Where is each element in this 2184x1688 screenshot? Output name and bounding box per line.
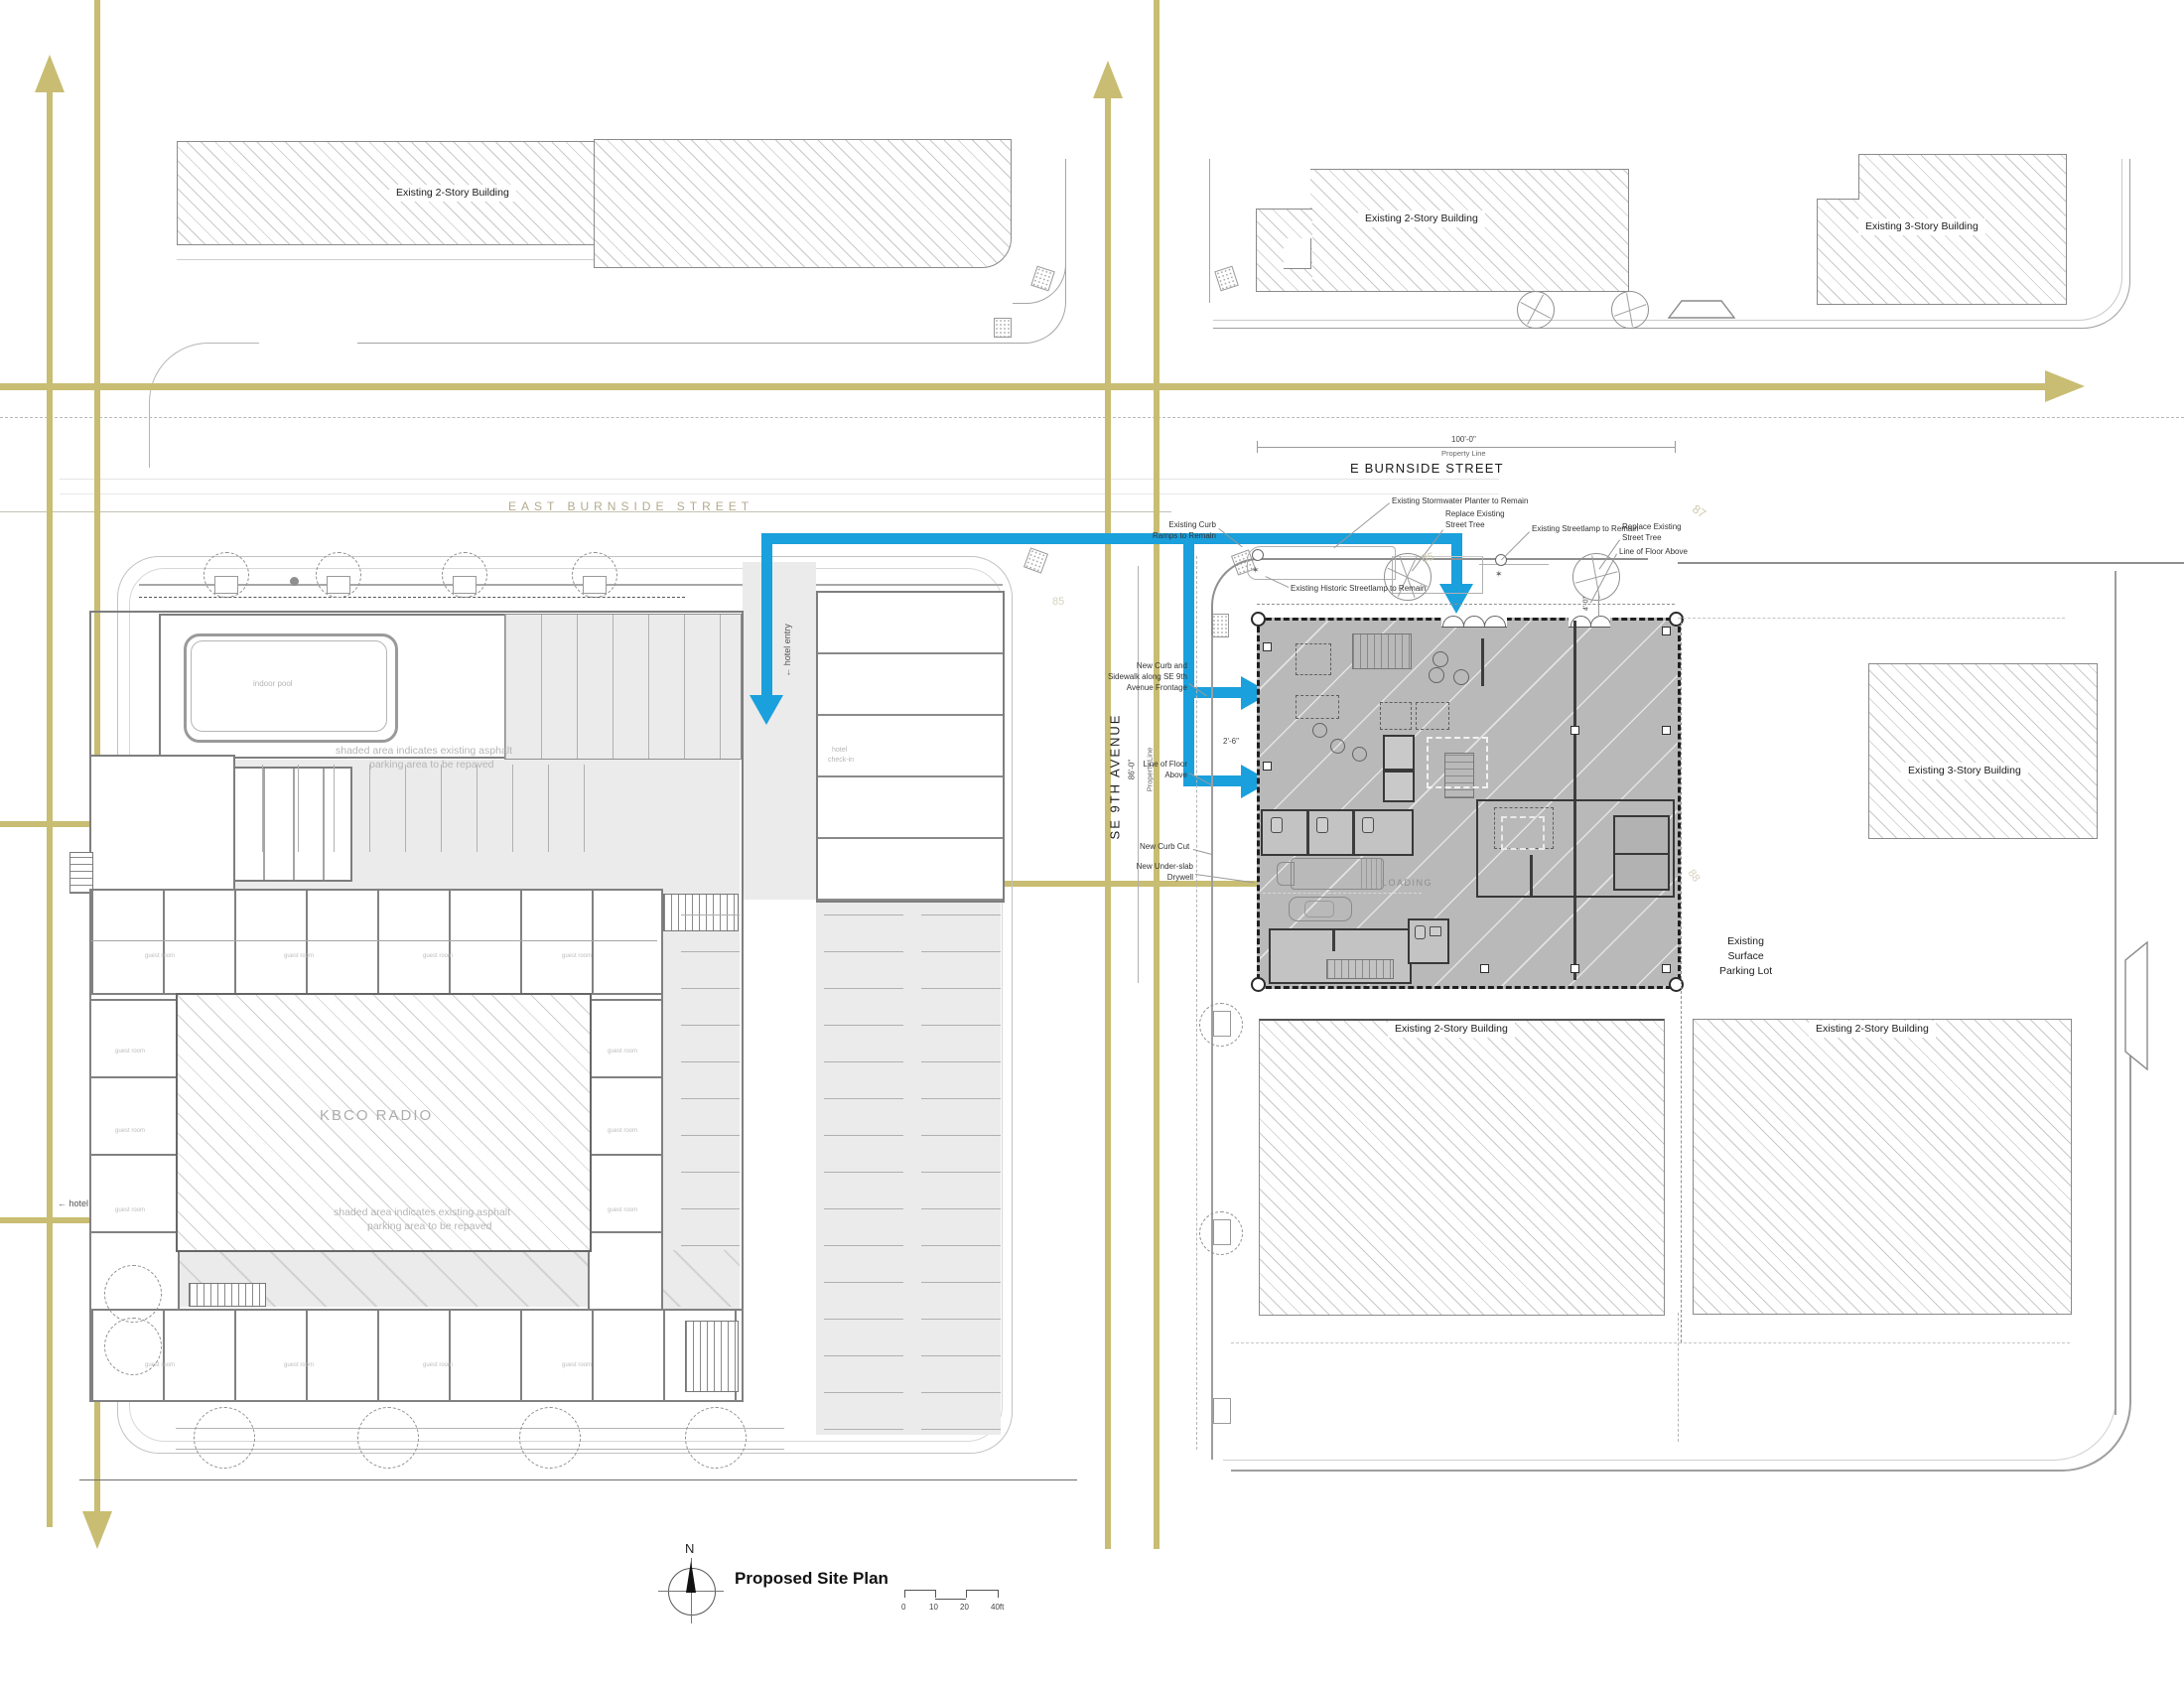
chair [1453, 669, 1469, 685]
west-stair [69, 852, 93, 894]
callout-historic-lamp: Existing Historic Streetlamp to Remain [1291, 584, 1427, 595]
callout-line: New Curb and [1137, 661, 1187, 670]
elevator-1 [1383, 735, 1415, 771]
scale-tick [966, 1590, 967, 1598]
surface-parking-line: Parking Lot [1719, 965, 1772, 977]
roof-dash-2 [1501, 816, 1545, 850]
scale-seg-2 [935, 1599, 966, 1600]
repave-note-bot-1: shaded area indicates existing asphalt [334, 1206, 510, 1218]
guest-room-label: guest room [284, 953, 314, 959]
right-sidewalk-edge-2 [1678, 562, 2184, 564]
hotel-tree-w1 [104, 1265, 162, 1323]
restroom-partition [1306, 811, 1309, 854]
scale-tick [935, 1590, 936, 1598]
scale-tick [998, 1590, 999, 1598]
scale-tick [904, 1590, 905, 1598]
guest-room-label: guest room [115, 1207, 145, 1213]
toilet [1362, 817, 1374, 833]
restroom-block [1261, 809, 1414, 856]
faint-line-2 [60, 493, 1499, 494]
indoor-pool-label: indoor pool [253, 679, 293, 688]
scale-label-20: 20 [960, 1603, 969, 1612]
building-nmid-label-text: Existing 2-Story Building [1365, 212, 1478, 224]
hotel-driveway [743, 562, 816, 900]
street-furniture-dot [290, 577, 299, 586]
elevator-2 [1383, 771, 1415, 802]
building-nw2-2story [594, 139, 1012, 268]
chair [1429, 667, 1444, 683]
e-burnside-label: E BURNSIDE STREET [1350, 461, 1504, 476]
callout-line: Street Tree [1445, 520, 1485, 529]
plan-title: Proposed Site Plan [735, 1569, 888, 1589]
building-ne-label-line1: Existing 3-Story Building [1865, 220, 1979, 232]
north-wing-bathline [91, 940, 657, 941]
building-nmid-label: Existing 2-Story Building [1358, 211, 1485, 227]
entrance-1 [1441, 614, 1507, 628]
street-arrow-h1-shaft [0, 383, 2047, 390]
east-aisle-stalls [681, 899, 740, 1246]
column-marker [1570, 964, 1579, 973]
south-wing-stair [685, 1321, 739, 1392]
mid-parking-stalls [262, 765, 590, 852]
tree-planter-4 [583, 576, 607, 594]
building-nw-label: Existing 2-Story Building [389, 185, 516, 202]
east-lot-stalls-2 [921, 914, 1001, 1430]
partial-wall [1481, 638, 1484, 686]
door-arc [1590, 616, 1610, 628]
lobby-stair [1352, 633, 1412, 669]
hotel-checkin-label1: hotel [832, 747, 847, 754]
callout-replace-tree-1: Replace Existing Street Tree [1445, 509, 1505, 531]
right-street-curb [2115, 571, 2116, 1415]
chair [1330, 739, 1345, 754]
south-guestroom-wing [89, 1309, 744, 1402]
streetlamp-base-icon: ✶ [1495, 570, 1503, 579]
callout-line: Replace Existing [1622, 522, 1682, 531]
roof-dash-1 [1427, 737, 1488, 788]
callout-line: Sidewalk along SE 9th [1108, 672, 1187, 681]
guest-room-label: guest room [608, 1128, 637, 1134]
stormwater-planter-a [1247, 546, 1396, 580]
building-nw-sidewalk-edge [177, 243, 594, 260]
north-label: N [685, 1541, 694, 1556]
repave-note-top-1: shaded area indicates existing asphalt [336, 745, 512, 757]
guest-room-label: guest room [284, 1362, 314, 1368]
south-room-stair [1326, 959, 1394, 979]
transit-shelter-east [2124, 941, 2148, 1070]
route-entry-vertical [761, 533, 772, 695]
right-site-west-curb [1211, 635, 1213, 1460]
floor-offset-dim: 4'-0" [1583, 597, 1590, 611]
corner-marker-nw [1251, 612, 1266, 627]
building-nmid-2story [1310, 169, 1629, 292]
street-arrow-v1-head [35, 55, 65, 92]
kbco-radio-label: KBCO RADIO [320, 1107, 433, 1124]
callout-line: Street Tree [1622, 533, 1662, 542]
historic-streetlamp-icon [1252, 549, 1264, 561]
street-arrow-v3-head [1093, 61, 1123, 98]
site-plan-canvas: EAST BURNSIDE STREET Existing 2-Story Bu… [0, 0, 2184, 1688]
east-room-box-2 [1613, 853, 1670, 891]
route-entry-head [750, 695, 783, 725]
column-marker [1480, 964, 1489, 973]
callout-floor-above-2: Line of Floor Above [1112, 760, 1187, 781]
curb-ramp-sw [1024, 547, 1048, 573]
chair [1433, 651, 1448, 667]
car-roof [1304, 901, 1334, 917]
restroom-partition [1352, 811, 1355, 854]
scale-label-0: 0 [901, 1603, 905, 1612]
building-e-3story-label: Existing 3-Story Building [1901, 763, 2028, 779]
callout-curb-cut: New Curb Cut [1140, 842, 1189, 853]
callout-line: Ramps to Remain [1153, 531, 1216, 540]
grade-line [79, 1479, 1077, 1480]
callout-new-curb: New Curb and Sidewalk along SE 9th Avenu… [1102, 661, 1187, 693]
toilet [1271, 817, 1283, 833]
small-room [1408, 918, 1449, 964]
left-sidewalk-edge2 [814, 584, 1003, 586]
callout-line: Above [1164, 771, 1187, 779]
west-rooms-upper [89, 755, 235, 893]
street-arrow-v2-head [82, 1511, 112, 1549]
building-nw-2story [177, 141, 596, 245]
lobby-table-4 [1416, 702, 1449, 730]
east-guestroom-wing [588, 993, 663, 1313]
scale-label-10: 10 [929, 1603, 938, 1612]
dim-tick-l [1257, 441, 1258, 453]
street-arrow-h1-head [2045, 370, 2085, 402]
door-arc [1484, 616, 1506, 628]
street-arrow-v1-shaft [47, 91, 53, 1527]
lobby-table-1 [1296, 643, 1331, 675]
east-room-box-1 [1613, 815, 1670, 855]
callout-curb-ramps: Existing Curb Ramps to Remain [1147, 520, 1216, 542]
building-nw-label-text: Existing 2-Story Building [396, 187, 509, 199]
transit-shelter-north [1668, 300, 1735, 319]
dim-tick-r [1675, 441, 1676, 453]
hotel-tree-s4 [685, 1407, 747, 1469]
column-marker [1662, 627, 1671, 635]
north-curb-west-corner [149, 343, 259, 468]
south-drive-stair [189, 1283, 266, 1307]
lobby-table-2 [1296, 695, 1339, 719]
callout-line: Avenue Frontage [1127, 683, 1187, 692]
route-horizontal [761, 533, 1462, 544]
arrow-glyph: ← [58, 1198, 67, 1208]
property-line-label: Property Line [1441, 449, 1486, 458]
callout-line: Replace Existing [1445, 509, 1505, 518]
property-dash-top [1678, 618, 2065, 619]
block-curb-southeast-inner [1223, 993, 2116, 1461]
callout-line: Existing Curb [1168, 520, 1216, 529]
repave-note-top-2: parking area to be repaved [369, 759, 494, 771]
route-branch-vertical [1183, 533, 1194, 786]
contour-85: 85 [1421, 551, 1434, 565]
property-dim-line [1257, 447, 1675, 448]
callout-line: New Under-slab [1137, 862, 1193, 871]
surface-parking-line: Surface [1727, 950, 1763, 962]
east-burnside-ghost-text: EAST BURNSIDE STREET [508, 499, 753, 513]
column-marker [1662, 964, 1671, 973]
line-of-floor-above-dash [1257, 604, 1675, 605]
loading-stall-dash [1263, 893, 1422, 894]
callout-floor-above: Line of Floor Above [1619, 547, 1688, 558]
column-marker [1662, 726, 1671, 735]
building-e-3story [1868, 663, 2098, 839]
guest-room-label: guest room [145, 953, 175, 959]
tree-planter-1 [214, 576, 238, 594]
curb-ramp-nw2 [994, 318, 1012, 338]
loading-label: LOADING [1382, 878, 1433, 888]
east-room-partition [1530, 855, 1533, 896]
street-tree-n1 [1517, 291, 1555, 329]
callout-line: Line of Floor [1144, 760, 1187, 769]
guest-room-label: guest room [562, 953, 592, 959]
hotel-entry-label: ← hotel entry [782, 624, 792, 677]
faint-line-1 [60, 479, 1499, 480]
guest-room-label: guest room [608, 1207, 637, 1213]
toilet [1415, 925, 1426, 939]
toilet [1316, 817, 1328, 833]
leader-streetlamp [1501, 531, 1530, 560]
contour-85b: 85 [1052, 596, 1064, 608]
guest-room-label: guest room [115, 1128, 145, 1134]
callout-replace-tree-2: Replace Existing Street Tree [1622, 522, 1682, 544]
chair [1352, 747, 1367, 762]
scale-seg-3 [966, 1590, 998, 1591]
hotel-checkin-label2: check-in [828, 757, 854, 764]
truck-cab [1277, 862, 1295, 886]
column-marker [1570, 726, 1579, 735]
guest-room-label: guest room [423, 953, 453, 959]
corner-marker-sw [1251, 977, 1266, 992]
scale-seg-1 [904, 1590, 935, 1591]
arrow-glyph: ← [782, 668, 792, 677]
surface-parking-line: Existing [1727, 935, 1764, 947]
north-arrow-needle [686, 1561, 696, 1593]
surface-parking-label: Existing Surface Parking Lot [1712, 933, 1779, 981]
tree-planter-3 [453, 576, 477, 594]
setback-dim: 2'-6" [1223, 737, 1239, 748]
property-width-dim: 100'-0" [1451, 435, 1476, 444]
street-tree-n2 [1611, 291, 1649, 329]
upper-parking-strip [504, 614, 742, 760]
column-marker [1263, 762, 1272, 771]
guest-room-label: guest room [115, 1049, 145, 1055]
hotel-tree-w2 [104, 1318, 162, 1375]
guest-room-label: guest room [423, 1362, 453, 1368]
chair [1312, 723, 1327, 738]
building-ne-label: Existing 3-Story Building [1858, 218, 1985, 235]
repave-note-bot-2: parking area to be repaved [367, 1220, 492, 1232]
callout-drywell: New Under-slab Drywell [1122, 862, 1193, 884]
contour-88: 88 [1686, 868, 1703, 885]
south-rooms [1269, 928, 1412, 984]
guest-room-label: guest room [608, 1049, 637, 1055]
column-marker [1263, 642, 1272, 651]
east-lot-stalls-1 [824, 914, 903, 1430]
historic-streetlamp-base-icon: ✶ [1252, 566, 1260, 575]
north-guestroom-wing [89, 889, 663, 997]
guest-room-label: guest room [562, 1362, 592, 1368]
callout-stormwater: Existing Stormwater Planter to Remain [1392, 496, 1528, 507]
floor-offset-tick [1598, 594, 1599, 616]
sink [1430, 926, 1441, 936]
door-arc [1442, 616, 1464, 628]
south-room-partition [1332, 930, 1335, 951]
hotel-tree-s3 [519, 1407, 581, 1469]
route-branch-end-shaft [1194, 775, 1242, 786]
lobby-table-3 [1380, 702, 1412, 730]
door-arc [1463, 616, 1485, 628]
hotel-tree-s1 [194, 1407, 255, 1469]
building-e-3story-text: Existing 3-Story Building [1908, 765, 2021, 776]
tree-spoke [1527, 295, 1544, 325]
hotel-entry-text: hotel entry [782, 624, 792, 665]
contour-87: 87 [1690, 501, 1708, 520]
burnside-centerline [0, 417, 2184, 418]
truck [1291, 858, 1384, 890]
tree-planter-2 [327, 576, 350, 594]
building-ne-notch [1817, 154, 1859, 200]
callout-line: Drywell [1167, 873, 1193, 882]
planter-tail-line [1479, 564, 1549, 565]
hotel-tree-s2 [357, 1407, 419, 1469]
scale-label-40ft: 40ft [991, 1603, 1004, 1612]
building-nmid-notch [1284, 238, 1311, 269]
